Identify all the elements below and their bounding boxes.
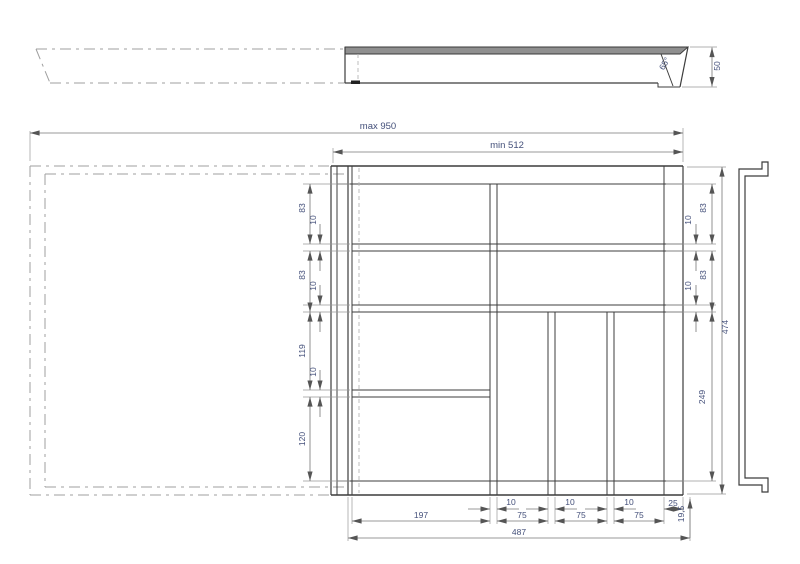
width-dims: max 950 min 512 xyxy=(30,121,683,163)
dim-slot-75-3: 75 xyxy=(634,510,644,520)
tray-top-rim xyxy=(345,47,688,54)
dim-left-10-2: 10 xyxy=(308,281,318,291)
plan-view: max 950 min 512 83 10 83 10 119 10 120 xyxy=(30,121,730,541)
dim-left-83-2: 83 xyxy=(297,270,307,280)
dim-right-249: 249 xyxy=(697,390,707,404)
dim-slot-75-1: 75 xyxy=(517,510,527,520)
dim-left-119: 119 xyxy=(297,344,307,358)
drawing-canvas: 50 65° xyxy=(0,0,800,564)
dim-left-120: 120 xyxy=(297,432,307,446)
dim-front-angle: 65° xyxy=(657,55,672,71)
right-dim-chain: 83 10 83 10 249 474 xyxy=(666,167,730,494)
dim-slot-197: 197 xyxy=(414,510,428,520)
dim-left-83-1: 83 xyxy=(297,203,307,213)
dim-min-width: min 512 xyxy=(490,140,524,151)
dim-right-83-2: 83 xyxy=(698,270,708,280)
dim-left-10-1: 10 xyxy=(308,215,318,225)
dim-max-width: max 950 xyxy=(360,121,396,132)
left-dim-chain: 83 10 83 10 119 10 120 xyxy=(297,184,350,481)
dim-right-10-2: 10 xyxy=(683,281,693,291)
end-profile-view xyxy=(739,162,768,492)
side-view-extended-dashed-outline xyxy=(36,49,362,83)
dim-bottom-10-2: 10 xyxy=(565,497,575,507)
dim-total-width-487: 487 xyxy=(512,527,526,537)
technical-drawing-cutlery-tray: 50 65° xyxy=(0,0,800,564)
dim-bottom-10-3: 10 xyxy=(624,497,634,507)
dim-right-83-1: 83 xyxy=(698,203,708,213)
tray-outline xyxy=(331,166,683,495)
bottom-dim-chain: 10 10 10 25 197 75 75 75 19,5 487 xyxy=(348,497,690,541)
dim-total-height-474: 474 xyxy=(720,320,730,334)
dim-slot-75-2: 75 xyxy=(576,510,586,520)
dim-side-height: 50 xyxy=(712,61,722,71)
dim-right-10-1: 10 xyxy=(683,215,693,225)
side-view-tray-profile xyxy=(345,47,688,87)
bottom-tick xyxy=(351,81,360,85)
side-view: 50 65° xyxy=(36,47,722,87)
dim-left-10-3: 10 xyxy=(308,367,318,377)
dim-bottom-10-1: 10 xyxy=(506,497,516,507)
dim-lip-19-5: 19,5 xyxy=(676,505,686,522)
tray-dividers xyxy=(352,184,683,495)
